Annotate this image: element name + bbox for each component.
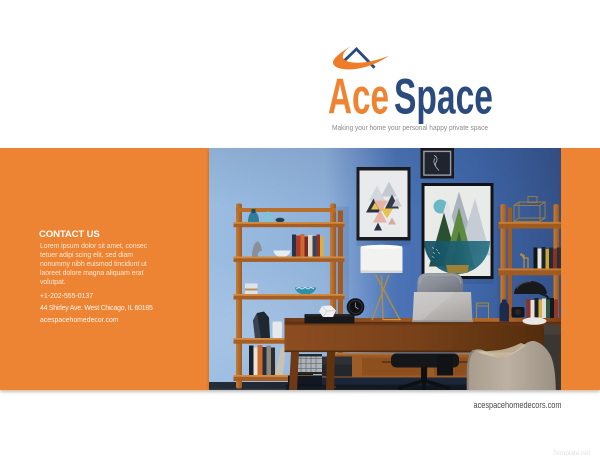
- svg-text:acespacehomedecors.com: acespacehomedecors.com: [474, 400, 562, 410]
- svg-text:Making your home your personal: Making your home your personal happy pri…: [332, 123, 488, 132]
- svg-text:Space: Space: [394, 69, 493, 125]
- svg-text:Ace: Ace: [328, 69, 389, 125]
